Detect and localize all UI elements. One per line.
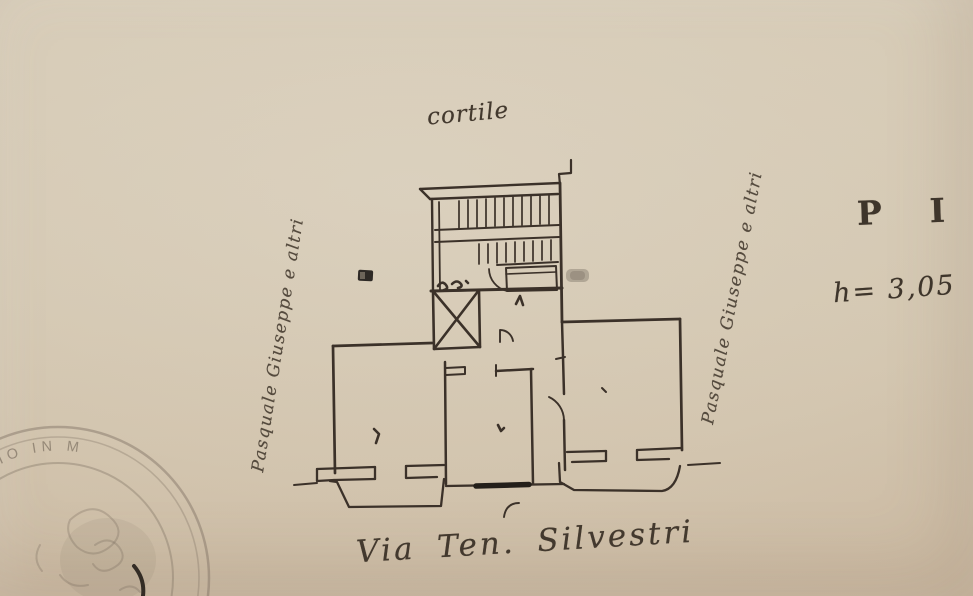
floor-plan-drawing: E NOTAIO IN M <box>0 0 973 596</box>
stair-treads-lower <box>479 240 551 264</box>
top-notch <box>559 160 571 185</box>
dark-smudge-left-notch <box>360 272 365 279</box>
entrance-door-swing <box>504 503 519 517</box>
windows-and-sills <box>294 448 720 486</box>
hallway-door-swing <box>500 330 513 342</box>
exterior-walls <box>333 319 682 473</box>
interior-partitions <box>445 322 565 484</box>
shaft-x-box <box>433 290 480 349</box>
stair-landing <box>489 262 558 291</box>
notary-stamp: E NOTAIO IN M <box>0 427 209 596</box>
middle-window-dark-line <box>476 485 529 487</box>
stamp-emblem <box>36 509 156 596</box>
landing-door-swing <box>489 269 507 291</box>
stair-treads-upper <box>459 195 549 228</box>
scan-artifacts <box>358 269 589 282</box>
stamp-arc-text: E NOTAIO IN M <box>0 438 85 524</box>
right-room-door-swing <box>549 397 564 420</box>
stair-block <box>420 160 571 322</box>
right-boundary-line <box>688 463 720 465</box>
scanned-floor-plan-page: E NOTAIO IN M <box>0 0 973 596</box>
ink-marks <box>374 281 606 443</box>
floor-designation-label: P I <box>856 190 963 233</box>
left-boundary-line <box>294 483 317 485</box>
